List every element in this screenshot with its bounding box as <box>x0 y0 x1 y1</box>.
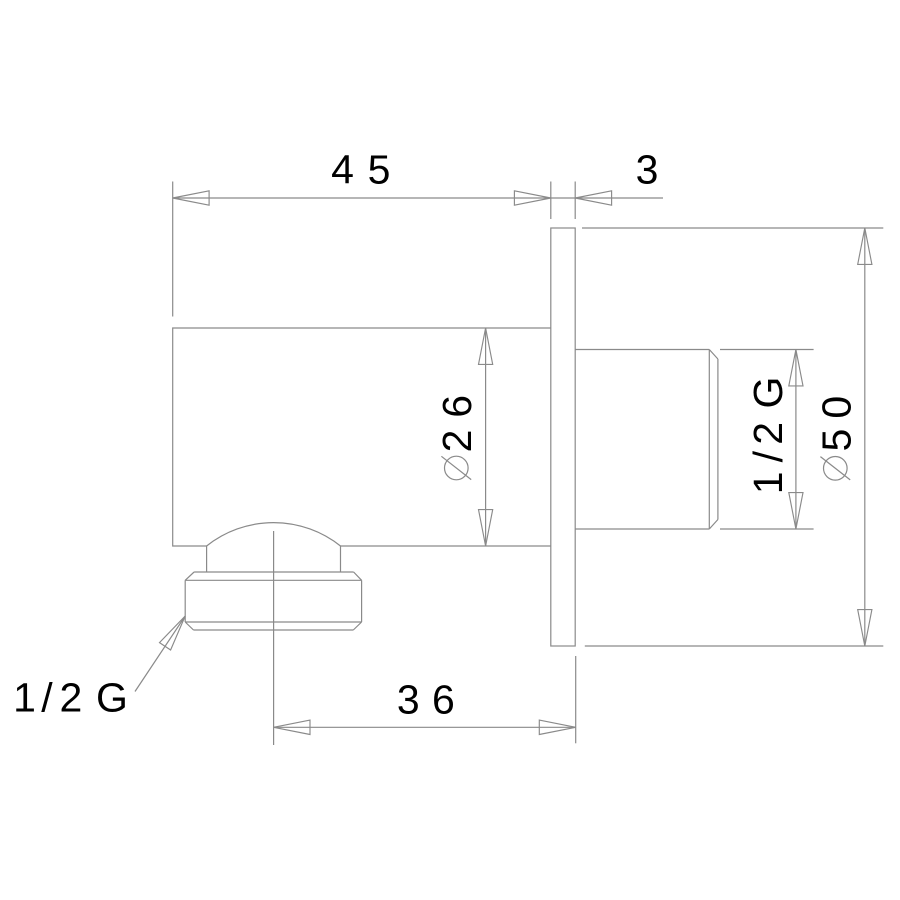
svg-text:1: 1 <box>745 471 791 494</box>
svg-text:G: G <box>96 675 128 721</box>
svg-text:G: G <box>745 377 791 409</box>
svg-text:2: 2 <box>59 675 82 721</box>
svg-text:6: 6 <box>432 676 455 722</box>
svg-text:/: / <box>41 675 53 721</box>
svg-text:6: 6 <box>434 395 480 418</box>
svg-text:2: 2 <box>434 430 480 453</box>
svg-text:0: 0 <box>813 396 859 419</box>
svg-text:3: 3 <box>397 676 420 722</box>
svg-text:2: 2 <box>745 422 791 445</box>
svg-text:5: 5 <box>813 429 859 452</box>
svg-text:1: 1 <box>13 675 36 721</box>
svg-text:5: 5 <box>368 147 391 193</box>
svg-text:4: 4 <box>331 147 354 193</box>
svg-text:/: / <box>745 450 791 462</box>
svg-text:3: 3 <box>636 147 659 193</box>
